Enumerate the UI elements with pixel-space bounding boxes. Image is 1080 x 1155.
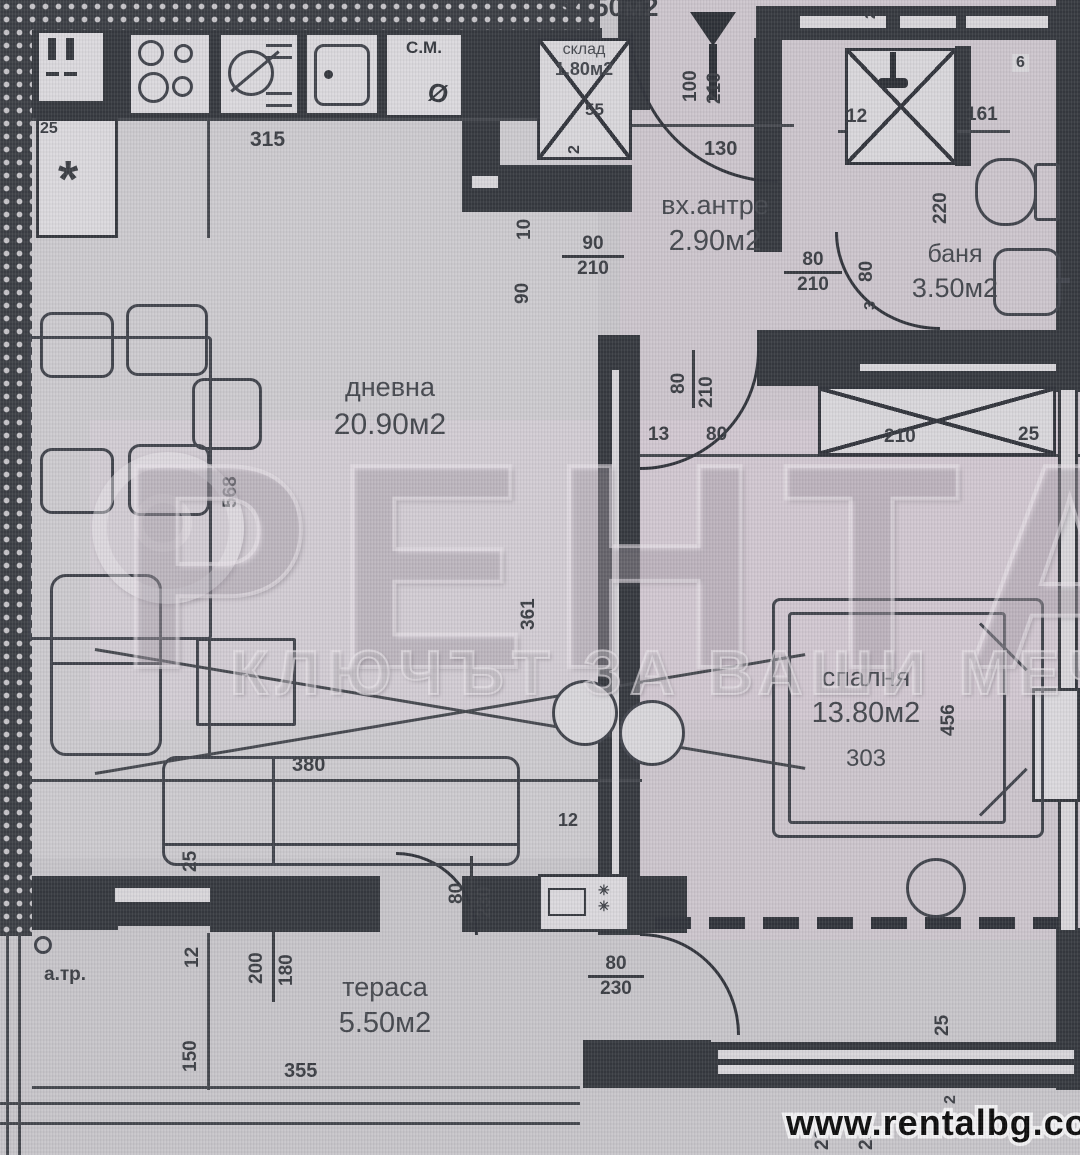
dim-wall-10: 10 [514,208,536,240]
dim-line-terrace [32,1086,580,1089]
dim-storage-side: 2 [566,132,584,154]
wall-central [598,335,640,935]
terrace-rail-left-1 [6,935,9,1155]
living-terrace-door-h: 230 [474,858,496,918]
window-living-terrace [115,888,210,902]
wall-bath-bedroom [757,330,1080,386]
sink-square-basin [314,44,370,106]
toilet [975,158,1037,226]
panel-bar-2 [66,38,74,60]
washing-machine-label: С.М. [386,38,462,58]
terrace-name: тераса [315,970,455,1005]
terrace-rail-1 [0,1102,580,1105]
entrance-door-w: 100 [680,44,702,102]
shaft-mark-2: ✳ [598,898,610,915]
shaft-mark-1: ✳ [598,882,610,899]
dim-bath-depth: 220 [930,174,952,224]
sink-square-drain-dot [324,70,333,79]
panel-dash-1 [46,72,59,76]
stove-burner-3 [174,44,193,63]
storage-name: склад [539,40,629,59]
living-terrace-frac-bar [470,856,473,922]
room-label-entry: вх.антре 2.90м2 [645,188,785,261]
dim-terrace-depth: 150 [180,1026,202,1072]
door-size-hall-living: 90 210 [562,234,624,280]
living-name: дневна [310,370,470,405]
dim-living-depth: 361 [518,580,540,630]
fridge-edge-line [207,118,210,238]
sink-drain-line-2 [266,56,292,59]
dim-sofa-side: 25 [180,830,202,872]
bath-sink-faucet [1056,278,1070,283]
dim-wardrobe-width: 210 [884,426,916,448]
bedroom-name: спалня [796,660,936,695]
dim-terrace-window-w: 200 [246,938,268,984]
shower-head-icon [890,52,896,80]
asterisk-symbol: * [58,150,78,210]
entrance-arrow-icon [690,12,736,46]
chair [126,304,208,376]
sofa-seam-h [165,843,517,846]
chair [40,312,114,378]
window-bottom-2 [718,1065,1074,1074]
bath-area: 3.50м2 [895,271,1015,306]
wall-terrace-2 [210,876,380,932]
panel-dash-2 [64,72,77,76]
overhang-dashed-line [655,917,1080,929]
terrace-area: 5.50м2 [315,1005,455,1043]
wall-textured-top [0,0,600,30]
window-slit-bath-bedroom [860,364,1056,371]
dim-bath-niche: 6 [1012,54,1029,72]
panel-bar-1 [48,38,56,60]
dim-bath-door-w: 80 [856,242,878,282]
bedroom-door-w: 80 [668,356,690,394]
dim-wall-12: 12 [558,810,578,831]
terrace-rail-2 [0,1122,580,1125]
sofa [162,756,520,866]
room-label-terrace: тераса 5.50м2 [315,970,455,1043]
dim-wall-90: 90 [512,260,534,304]
stove-burner-4 [172,76,193,97]
door-h: 230 [588,975,644,1000]
door-w: 90 [562,234,624,255]
door-w: 80 [784,250,842,271]
dim-bedroom-width: 303 [796,743,936,774]
dim-terrace-width: 355 [284,1060,317,1083]
dim-bath-width: 161 [966,104,998,126]
bedroom-door-h: 210 [696,348,718,408]
dim-door-gap-13: 13 [648,424,669,446]
dim-bedroom-depth: 456 [938,680,960,736]
duct-shaft-inner [548,888,586,916]
dim-storage-depth: 55 [585,100,604,120]
window-right-edge [1058,390,1078,930]
dim-kitchen-width: 315 [250,128,285,152]
bedroom-door-frac-bar [692,350,695,408]
shower-head-cap [878,78,908,88]
chair [192,378,262,450]
window-top-right-2 [900,16,956,28]
living-area: 20.90м2 [310,405,470,444]
terrace-window-bar [272,932,275,1002]
wall-storage-stub [462,165,632,212]
floor-plan: С.М. Ø 25 * склад 1.80м2 55 2 54.50м2 10… [0,0,1080,1155]
terrace-divider-line [207,933,210,1090]
dim-top-small-2: 2 [862,1,879,19]
drain-pipe-circle [34,936,52,954]
sofa-seam-v [272,758,275,864]
door-size-bedroom-terrace: 80 230 [588,954,644,1000]
room-label-living: дневна 20.90м2 [310,370,470,444]
dim-door-gap-80: 80 [706,424,727,446]
entry-name: вх.антре [645,188,785,223]
dim-terrace-side: 12 [182,936,204,968]
entrance-door-h: 210 [704,42,726,104]
stove-burner-1 [138,40,164,66]
dim-bterrace-side: 25 [932,996,954,1036]
entry-area: 2.90м2 [645,223,785,261]
dim-shower-side: 12 [846,106,867,128]
bedroom-terrace-door-arc [640,933,740,1035]
pipe-shaft-circle-1 [552,680,618,746]
door-h: 210 [784,271,842,296]
terrace-rail-left-2 [18,935,21,1155]
sink-drain-line-3 [266,92,292,95]
stove-burner-2 [138,72,169,103]
drain-label: а.тр. [44,964,86,986]
dim-sofa-width: 380 [292,754,325,777]
window-top-right-3 [966,16,1048,28]
door-size-bath: 80 210 [784,250,842,296]
dim-bterrace-2: 2 [942,1084,960,1104]
coffee-table [196,638,296,726]
armchair-seam [53,662,159,665]
dim-terrace-window-h: 180 [276,938,298,986]
dim-bath-wall: 3 [862,290,880,310]
round-table [906,858,966,918]
wall-bedroom-bottom [583,1040,711,1088]
slit-central-wall [612,370,619,910]
storage-area: 1.80м2 [539,59,629,81]
sink-drain-line-4 [266,104,292,107]
dim-entry-width: 130 [704,138,737,161]
website-watermark: www.rentalbg.com [786,1102,1080,1144]
wall-terrace-1 [32,876,118,930]
room-label-bath: баня 3.50м2 [895,238,1015,306]
sink-drain-line-1 [266,44,292,47]
dim-wardrobe-side: 25 [1018,424,1039,446]
room-label-storage: склад 1.80м2 [539,40,629,81]
window-bottom-1 [718,1050,1074,1059]
dim-kitchen-side: 25 [40,120,58,138]
rental-logo-inner-icon [134,494,192,552]
armchair [50,574,162,756]
bath-name: баня [895,238,1015,271]
toilet-tank [1034,163,1060,221]
living-terrace-door-w: 80 [446,866,468,904]
pipe-shaft-circle-2 [619,700,685,766]
door-h: 210 [562,255,624,280]
bedroom-area: 13.80м2 [796,695,936,733]
window-slit-storage [472,176,498,188]
total-area-label: 54.50м2 [556,0,659,23]
door-w: 80 [588,954,644,975]
room-label-bedroom: спалня 13.80м2 303 [796,660,936,774]
